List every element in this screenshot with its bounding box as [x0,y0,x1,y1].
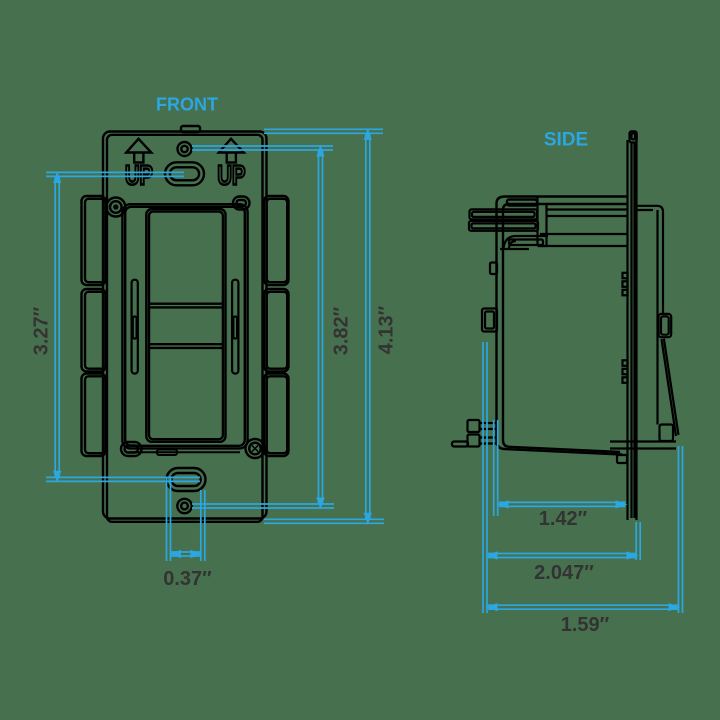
svg-text:3.27″: 3.27″ [31,306,53,355]
svg-text:4.13″: 4.13″ [376,305,398,354]
svg-text:UP: UP [217,160,245,191]
svg-text:SIDE: SIDE [544,130,588,151]
svg-text:FRONT: FRONT [156,95,218,115]
svg-text:3.82″: 3.82″ [331,306,353,355]
svg-text:0.37″: 0.37″ [163,568,212,590]
svg-text:1.42″: 1.42″ [539,508,588,530]
svg-text:2.047″: 2.047″ [534,562,594,584]
svg-text:1.59″: 1.59″ [561,614,610,636]
